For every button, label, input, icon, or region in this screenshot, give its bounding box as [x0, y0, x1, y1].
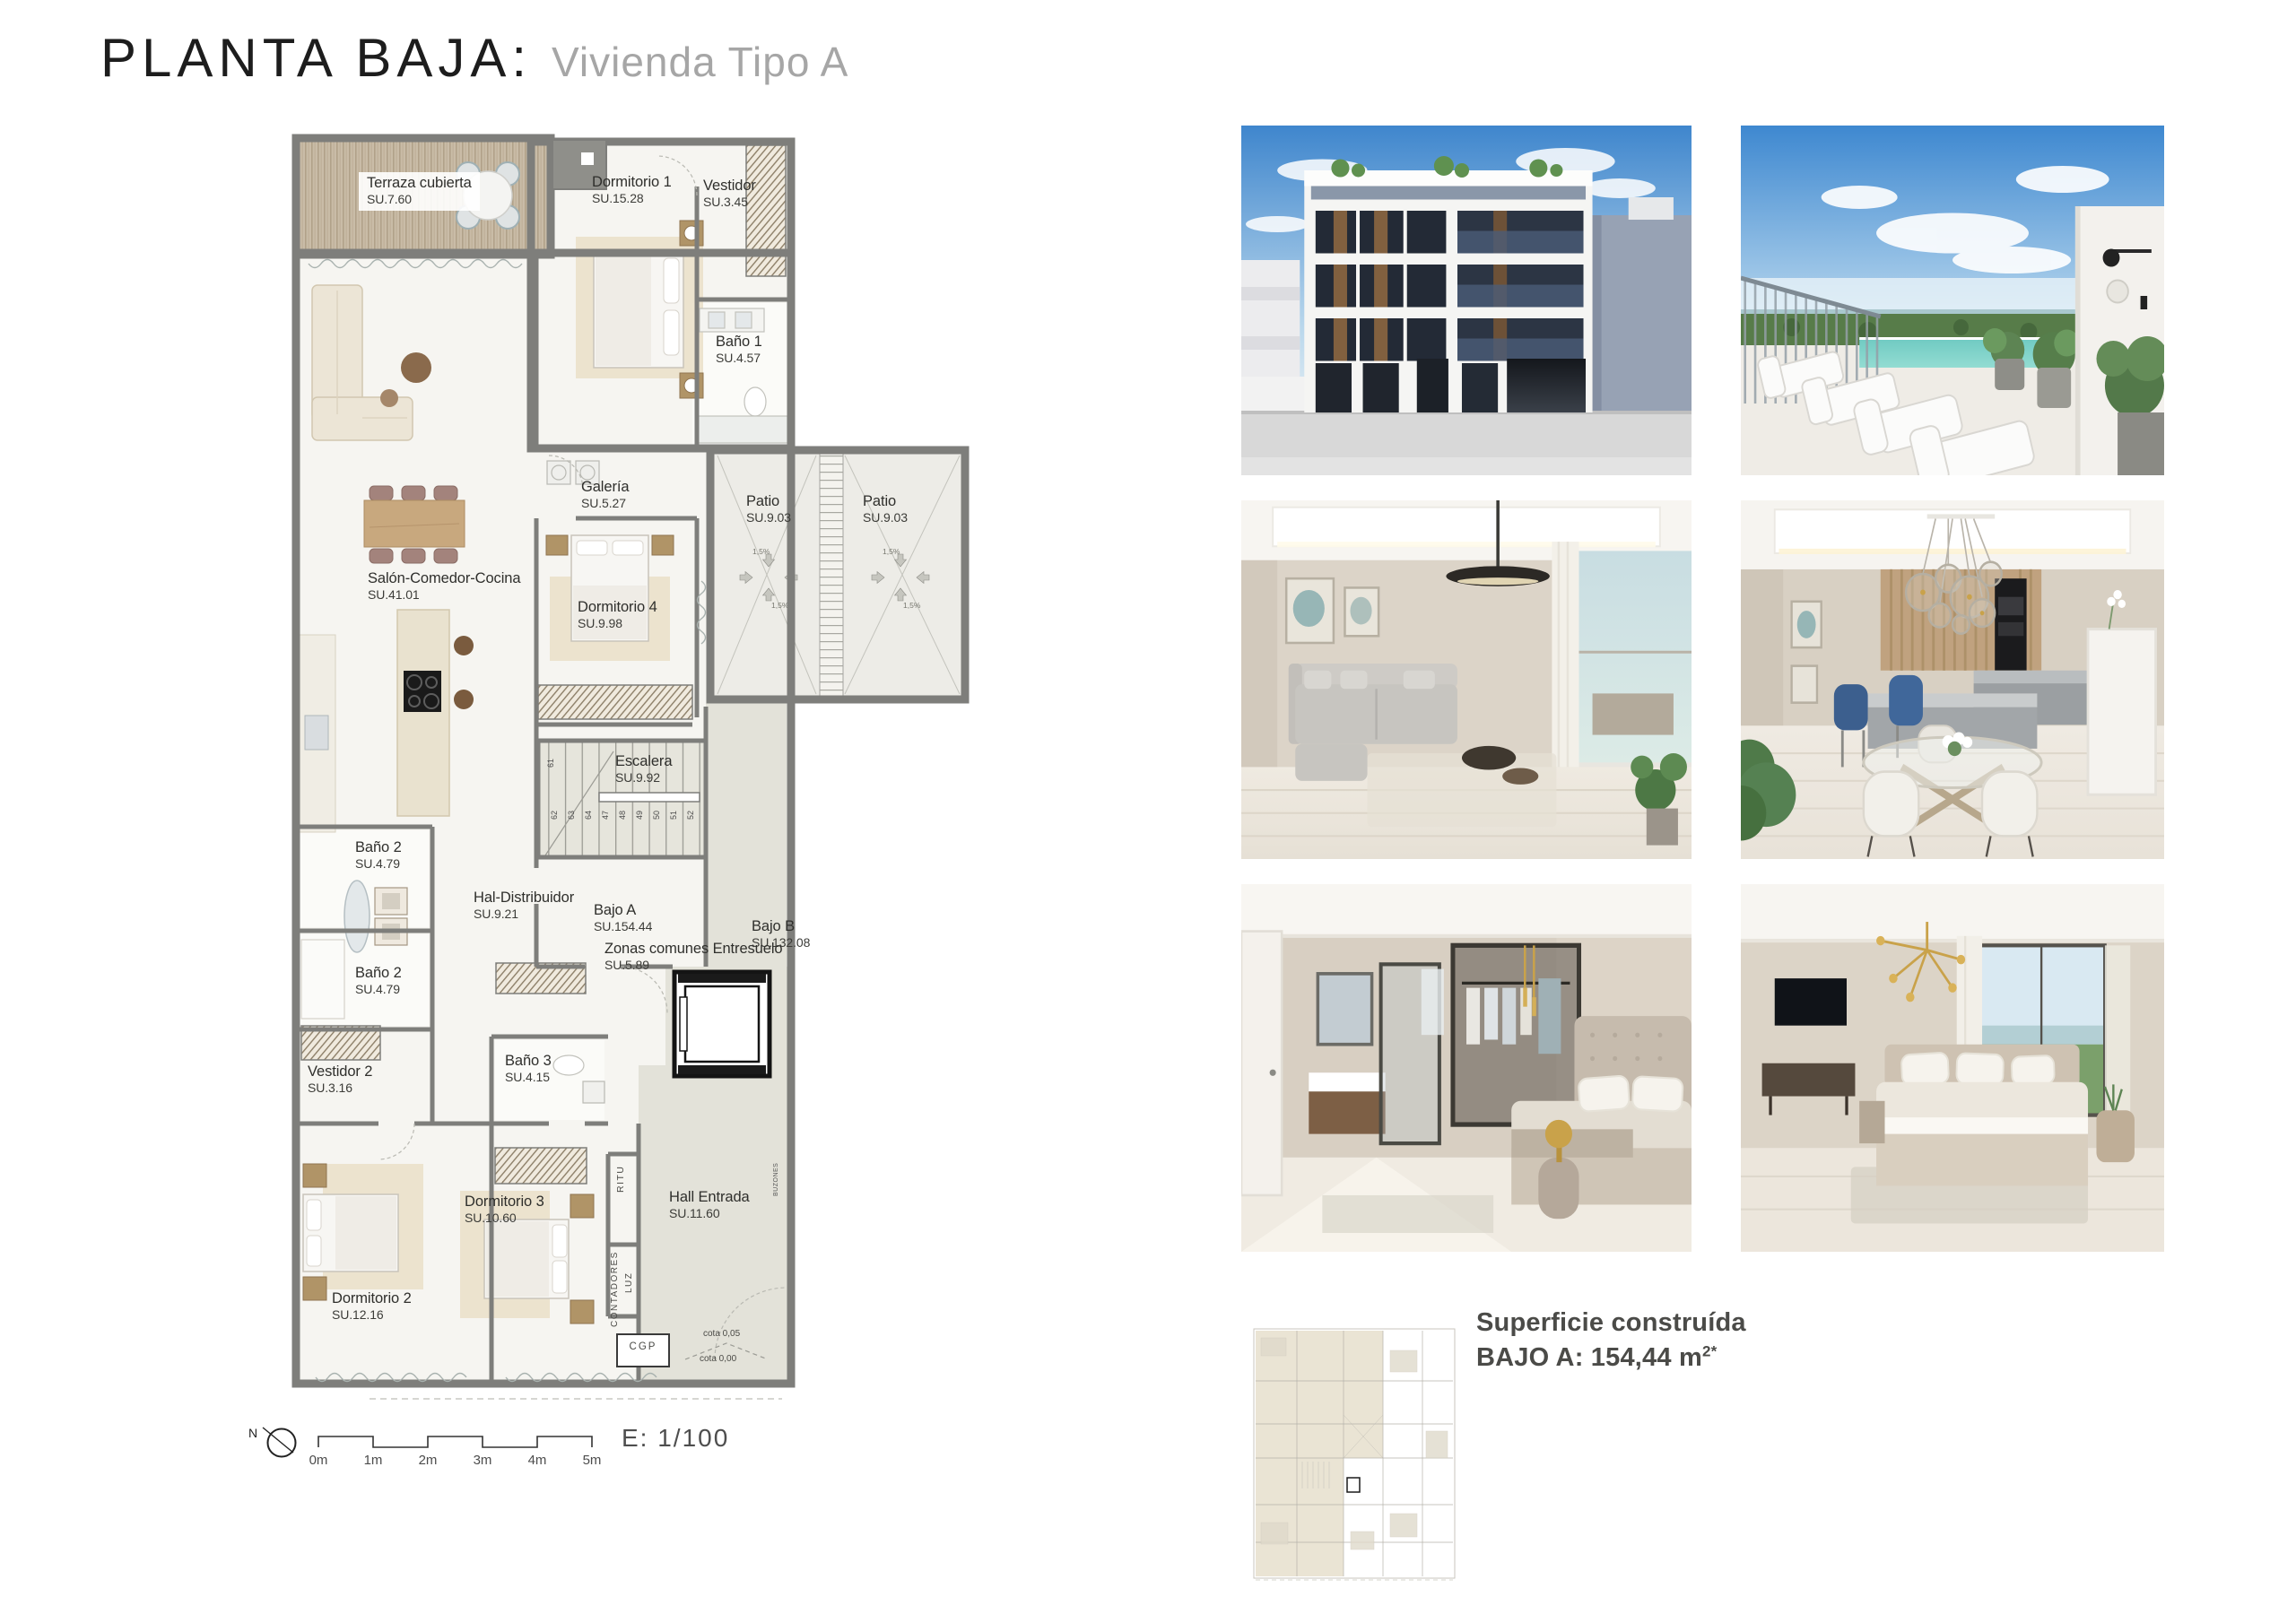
room-label-galeria: GaleríaSU.5.27: [581, 479, 629, 510]
scale-tick-5m: 5m: [574, 1453, 610, 1468]
scale-ratio-label: E: 1/100: [622, 1424, 729, 1453]
room-label-patio-1: PatioSU.9.03: [746, 493, 791, 525]
cgp-label: CGP: [617, 1341, 669, 1352]
floor-plan: 1,5% 1,5% 1,5% 1,5%: [280, 133, 979, 1406]
white-cabinet: [2088, 629, 2156, 795]
page-title: PLANTA BAJA: Vivienda Tipo A: [100, 27, 848, 89]
wardrobe-dormitorio-3: [495, 1148, 587, 1184]
nightstand-left: [1859, 1101, 1884, 1143]
scale-tick-3m: 3m: [465, 1453, 500, 1468]
room-label-bano-3: Baño 3SU.4.15: [505, 1053, 552, 1084]
contadores-label: CONTADORES: [610, 1251, 620, 1327]
stair-number: 48: [618, 811, 627, 820]
photo-bedroom: [1741, 884, 2164, 1252]
slope-label: 1,5%: [752, 547, 770, 556]
stair-number: 63: [567, 811, 576, 820]
photo-dining-kitchen: [1741, 500, 2164, 859]
wardrobe-glass: [1453, 945, 1579, 1124]
scale-tick-4m: 4m: [519, 1453, 555, 1468]
bed-dormitorio-2: [303, 1164, 423, 1300]
wall-art: [1286, 578, 1378, 643]
room-label-bano-2a: Baño 2SU.4.79: [355, 839, 402, 871]
room-label-dormitorio-1: Dormitorio 1SU.15.28: [592, 174, 672, 205]
page-title-main: PLANTA BAJA:: [100, 27, 532, 89]
room-label-patio-2: PatioSU.9.03: [863, 493, 908, 525]
key-plan-elevator: [1347, 1478, 1360, 1492]
bed-dormitorio-1: [576, 221, 703, 398]
stair-number: 62: [550, 811, 559, 820]
room-label-salon: Salón-Comedor-CocinaSU.41.01: [368, 570, 520, 602]
sideboard: [1593, 693, 1674, 734]
scale-bar-line: [318, 1436, 592, 1447]
cota-bottom-label: cota 0,00: [700, 1354, 736, 1364]
stair-number: 50: [652, 811, 661, 820]
scale-tick-0m: 0m: [300, 1453, 336, 1468]
roof-terrace-render: [1741, 126, 2164, 475]
room-label-dormitorio-2: Dormitorio 2SU.12.16: [332, 1290, 412, 1322]
stair-number: 51: [669, 811, 678, 820]
room-label-hall-entrada: Hall EntradaSU.11.60: [669, 1189, 750, 1220]
brochure-page: PLANTA BAJA: Vivienda Tipo A: [0, 0, 2296, 1623]
room-label-dormitorio-3: Dormitorio 3SU.10.60: [465, 1193, 544, 1225]
buzones-label: BUZONES: [773, 1163, 779, 1196]
key-plan-drawing: [1247, 1325, 1462, 1582]
elevator: [674, 972, 770, 1076]
scale-bar-group: N 0m 1m 2m 3m 4m 5m E: 1/100: [229, 1424, 767, 1487]
luz-label: LUZ: [624, 1272, 634, 1293]
vanity: [1309, 1072, 1385, 1133]
room-label-bajo-a: Bajo ASU.154.44: [594, 902, 652, 933]
page-title-sub: Vivienda Tipo A: [552, 38, 848, 86]
stair-number: 47: [601, 811, 610, 820]
room-label-bano-2b: Baño 2SU.4.79: [355, 965, 402, 996]
room-label-escalera: EscaleraSU.9.92: [615, 753, 672, 785]
north-label: N: [248, 1426, 257, 1440]
room-label-zonas-comunes: Zonas comunes EntresueloSU.5.89: [604, 941, 782, 972]
ritu-label: RITU: [615, 1166, 626, 1193]
built-area-summary: Superficie construída BAJO A: 154,44 m2*: [1476, 1306, 1746, 1376]
scale-tick-1m: 1m: [355, 1453, 391, 1468]
dining-table-set: [364, 486, 465, 563]
door: [1241, 932, 1282, 1195]
summary-line-2: BAJO A: 154,44 m2*: [1476, 1341, 1746, 1376]
room-label-dormitorio-4: Dormitorio 4SU.9.98: [578, 599, 657, 630]
photo-bedroom-ensuite: [1241, 884, 1692, 1252]
stair-number: 52: [686, 811, 695, 820]
slope-label: 1,5%: [903, 601, 921, 610]
scale-tick-2m: 2m: [410, 1453, 446, 1468]
mirror: [1318, 974, 1371, 1045]
photo-building-facade: [1241, 126, 1692, 475]
north-compass-icon: [263, 1428, 296, 1457]
bedroom-render: [1741, 884, 2164, 1252]
dining-kitchen-render: [1741, 500, 2164, 859]
slope-label: 1,5%: [883, 547, 900, 556]
building-facade-render: [1241, 126, 1692, 475]
patio-divider-grille: [820, 452, 843, 696]
wardrobe-dormitorio-4: [538, 685, 692, 719]
stair-number: 61: [546, 759, 555, 768]
stair-number: 64: [584, 811, 593, 820]
slope-label: 1,5%: [771, 601, 789, 610]
bedroom-ensuite-render: [1241, 884, 1692, 1252]
summary-line-1: Superficie construída: [1476, 1306, 1746, 1341]
key-plan: [1247, 1325, 1462, 1582]
photo-roof-terrace-pool: [1741, 126, 2164, 475]
room-label-hal-distribuidor: Hal-DistribuidorSU.9.21: [474, 890, 574, 921]
room-label-vestidor-2: Vestidor 2SU.3.16: [308, 1063, 372, 1095]
bed-dormitorio-4: [546, 535, 674, 661]
photo-living-room: [1241, 500, 1692, 859]
room-label-bano-1: Baño 1SU.4.57: [716, 334, 762, 365]
bed: [1876, 1045, 2088, 1186]
room-label-vestidor: VestidorSU.3.45: [703, 178, 756, 209]
cota-top-label: cota 0,05: [703, 1329, 740, 1339]
living-room-render: [1241, 500, 1692, 859]
room-label-terraza: Terraza cubiertaSU.7.60: [359, 172, 480, 211]
stair-number: 49: [635, 811, 644, 820]
coffee-table: [1462, 746, 1516, 770]
